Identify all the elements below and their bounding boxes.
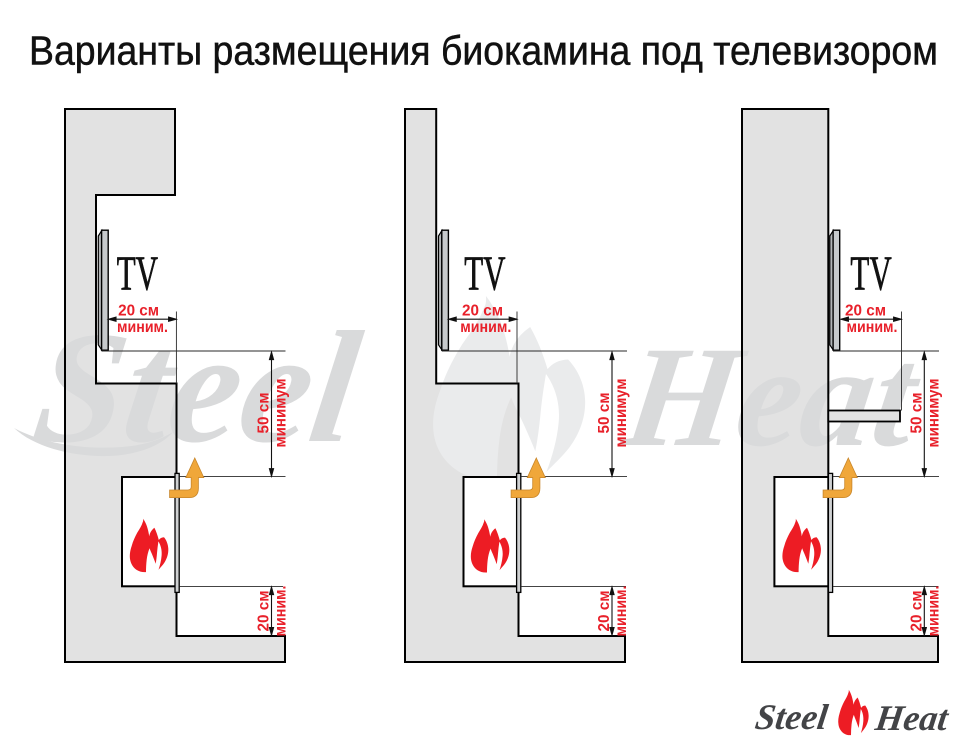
svg-text:20 см: 20 см <box>908 591 925 632</box>
svg-text:20 см: 20 см <box>845 302 886 319</box>
svg-text:50 см: 50 см <box>256 393 273 434</box>
svg-text:50 см: 50 см <box>596 393 613 434</box>
svg-text:20 см: 20 см <box>462 302 503 319</box>
svg-text:20 см: 20 см <box>596 591 613 632</box>
svg-text:TV: TV <box>464 245 505 300</box>
svg-text:минимум: минимум <box>925 379 942 448</box>
svg-text:50 см: 50 см <box>908 393 925 434</box>
svg-text:миним.: миним. <box>925 586 942 637</box>
svg-text:TV: TV <box>850 245 891 300</box>
svg-text:TV: TV <box>117 245 158 300</box>
svg-text:Heat: Heat <box>614 318 930 477</box>
svg-text:миним.: миним. <box>613 586 630 637</box>
svg-text:миним.: миним. <box>460 319 511 336</box>
svg-text:Варианты размещения биокамина: Варианты размещения биокамина под телеви… <box>29 28 938 74</box>
svg-text:Heat: Heat <box>872 698 951 738</box>
svg-text:20 см: 20 см <box>256 591 273 632</box>
svg-text:миним.: миним. <box>847 319 898 336</box>
svg-text:миним.: миним. <box>273 586 290 637</box>
svg-text:Steel: Steel <box>753 697 831 737</box>
svg-text:20 см: 20 см <box>118 302 159 319</box>
svg-text:минимум: минимум <box>273 379 290 448</box>
svg-text:миним.: миним. <box>117 319 168 336</box>
svg-text:минимум: минимум <box>613 379 630 448</box>
